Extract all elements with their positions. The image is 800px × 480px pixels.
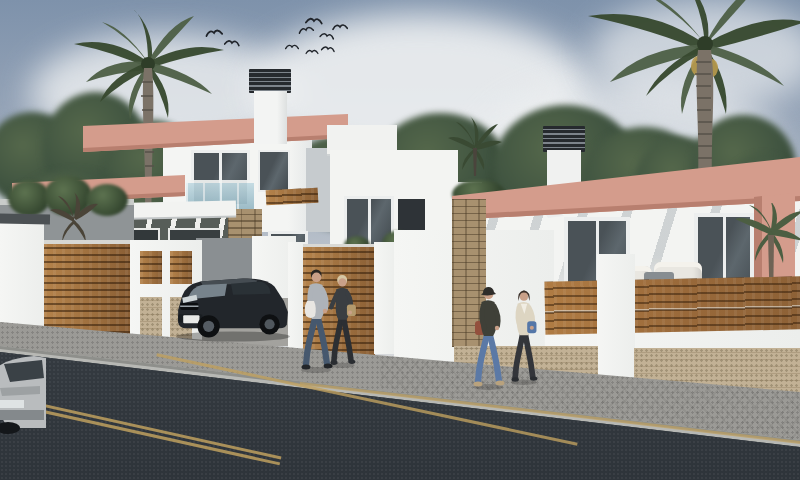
garage-wall (0, 220, 44, 332)
palm-trunk (697, 50, 714, 186)
palm-tree-right (580, 0, 800, 204)
chimney-cap-left (249, 69, 291, 93)
upper-window-glass (260, 152, 288, 190)
license-plate (183, 315, 199, 323)
parked-suv (170, 268, 296, 344)
rear-wheel-rim (265, 319, 275, 329)
bird-icon (285, 43, 299, 51)
gate-cap (303, 244, 375, 247)
pedestrian-walker-couple2 (468, 284, 508, 392)
bird-icon (320, 44, 335, 54)
fence-pillar (597, 254, 635, 386)
bird-icon (332, 22, 349, 32)
fence-wood-inset (140, 251, 162, 284)
partial-silver-car (0, 348, 46, 434)
side-windows (231, 282, 271, 295)
fence-pillar (374, 242, 396, 354)
fence-panel-cap (44, 240, 130, 244)
chimney-left (254, 91, 287, 144)
shoulder-bag (347, 304, 356, 316)
grille-chrome (180, 305, 198, 307)
palm-fronds (588, 0, 800, 114)
chimney-right (547, 150, 581, 188)
palm-crown (697, 36, 713, 52)
front-wheel-rim (203, 321, 214, 332)
pedestrian-woman-couple1 (324, 274, 360, 369)
cap (481, 287, 496, 295)
garage-wall-coping (0, 214, 50, 225)
bird-icon (305, 48, 319, 56)
chimney-cap-right (543, 126, 585, 152)
street-render-scene (0, 0, 800, 480)
bird-icon (305, 15, 324, 26)
wood-lintel-beam (266, 188, 319, 206)
draped-jacket (305, 301, 316, 318)
bird-icon (319, 30, 336, 41)
pedestrian-woman-couple2 (505, 288, 542, 386)
